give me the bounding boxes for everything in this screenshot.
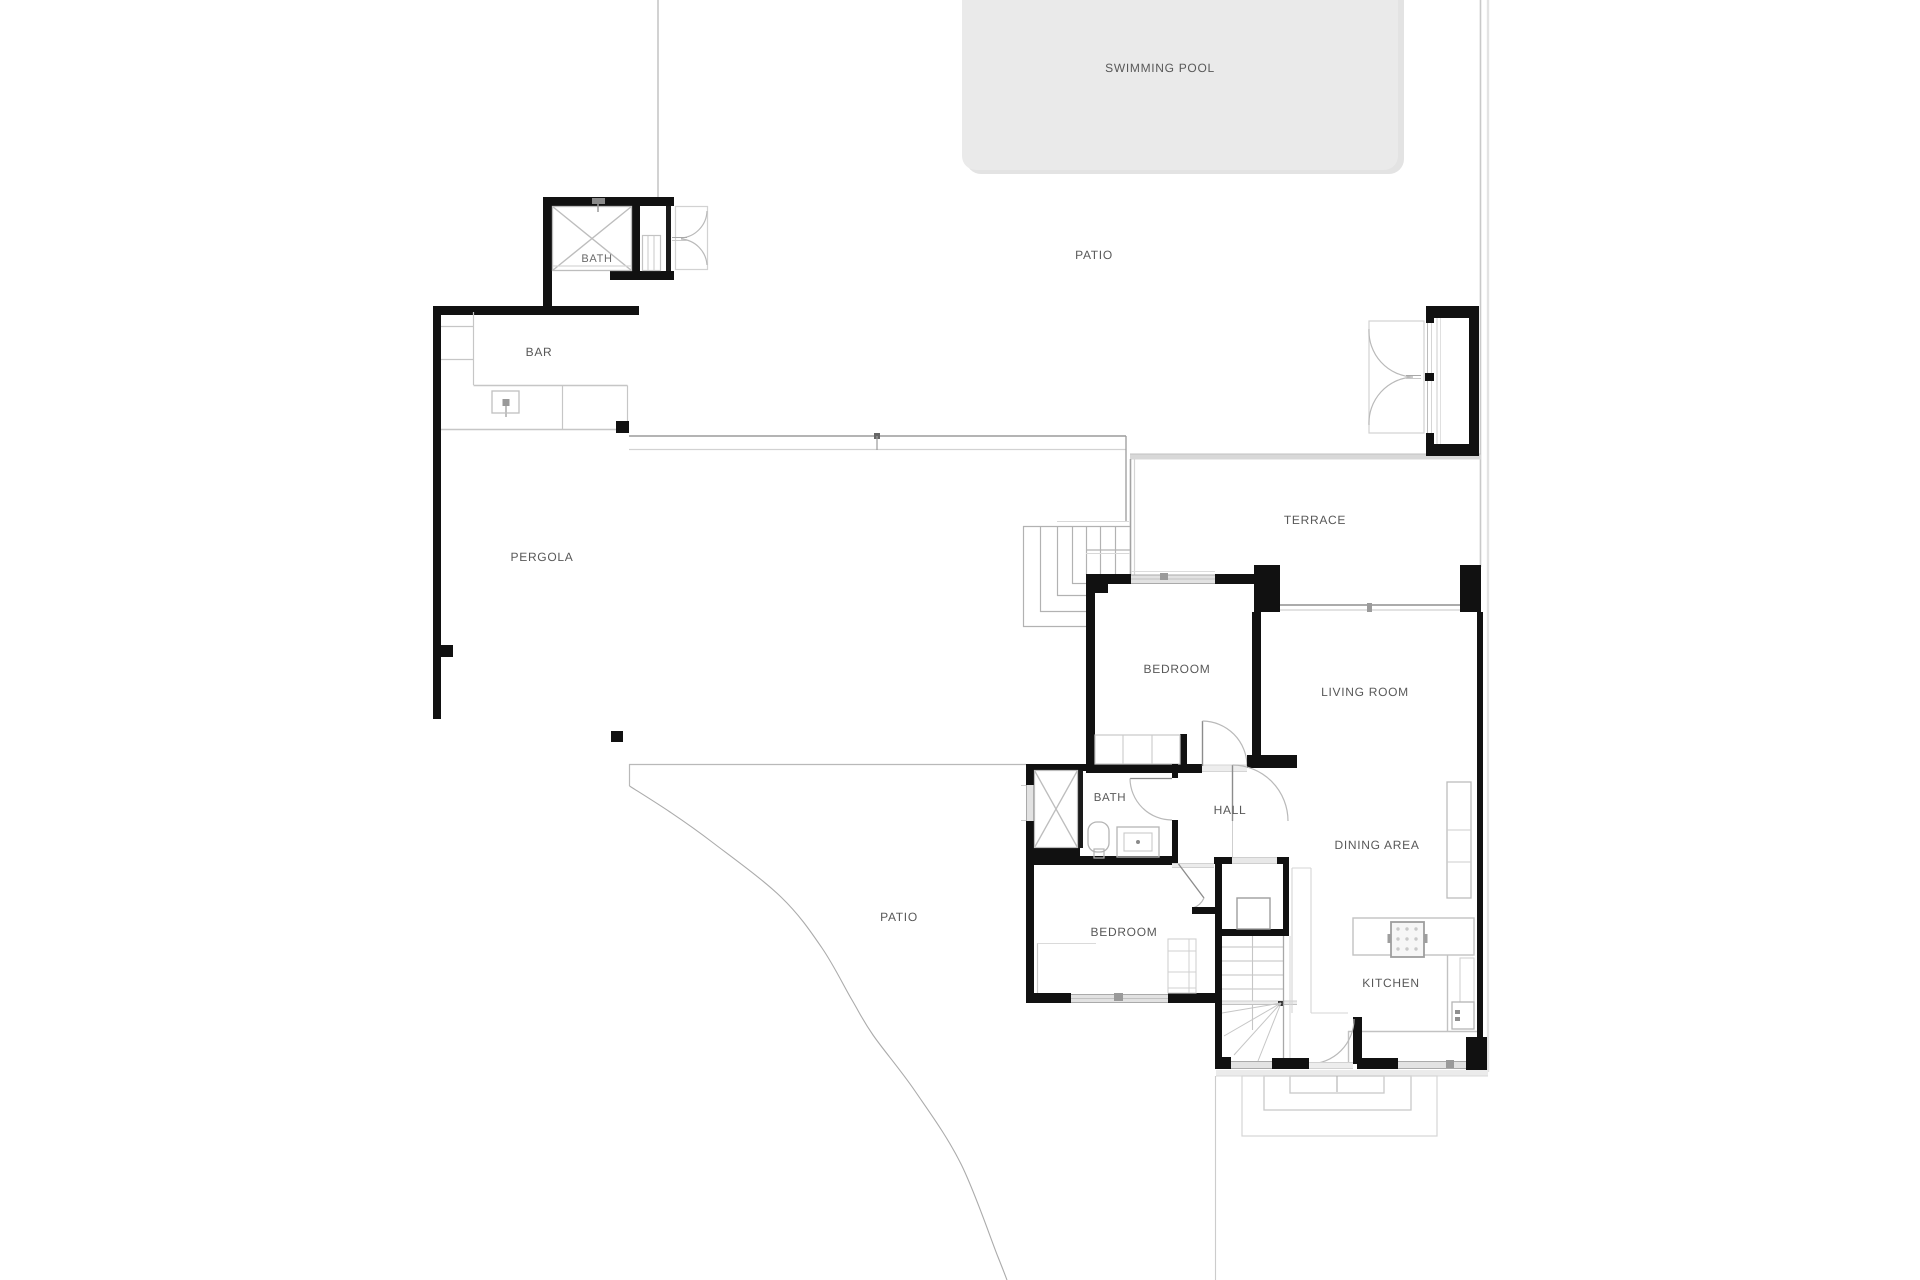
svg-text:PERGOLA: PERGOLA bbox=[511, 550, 574, 564]
svg-text:PATIO: PATIO bbox=[880, 910, 918, 924]
svg-text:BEDROOM: BEDROOM bbox=[1144, 662, 1211, 676]
svg-text:HALL: HALL bbox=[1214, 803, 1247, 817]
svg-text:TERRACE: TERRACE bbox=[1284, 513, 1346, 527]
svg-text:KITCHEN: KITCHEN bbox=[1362, 976, 1420, 990]
svg-text:DINING AREA: DINING AREA bbox=[1334, 838, 1419, 852]
svg-text:LIVING ROOM: LIVING ROOM bbox=[1321, 685, 1409, 699]
svg-text:SWIMMING POOL: SWIMMING POOL bbox=[1105, 61, 1215, 75]
svg-text:BAR: BAR bbox=[526, 345, 553, 359]
svg-text:BATH: BATH bbox=[1094, 792, 1127, 804]
svg-text:BEDROOM: BEDROOM bbox=[1091, 925, 1158, 939]
svg-text:BATH: BATH bbox=[581, 253, 612, 265]
svg-text:PATIO: PATIO bbox=[1075, 248, 1113, 262]
